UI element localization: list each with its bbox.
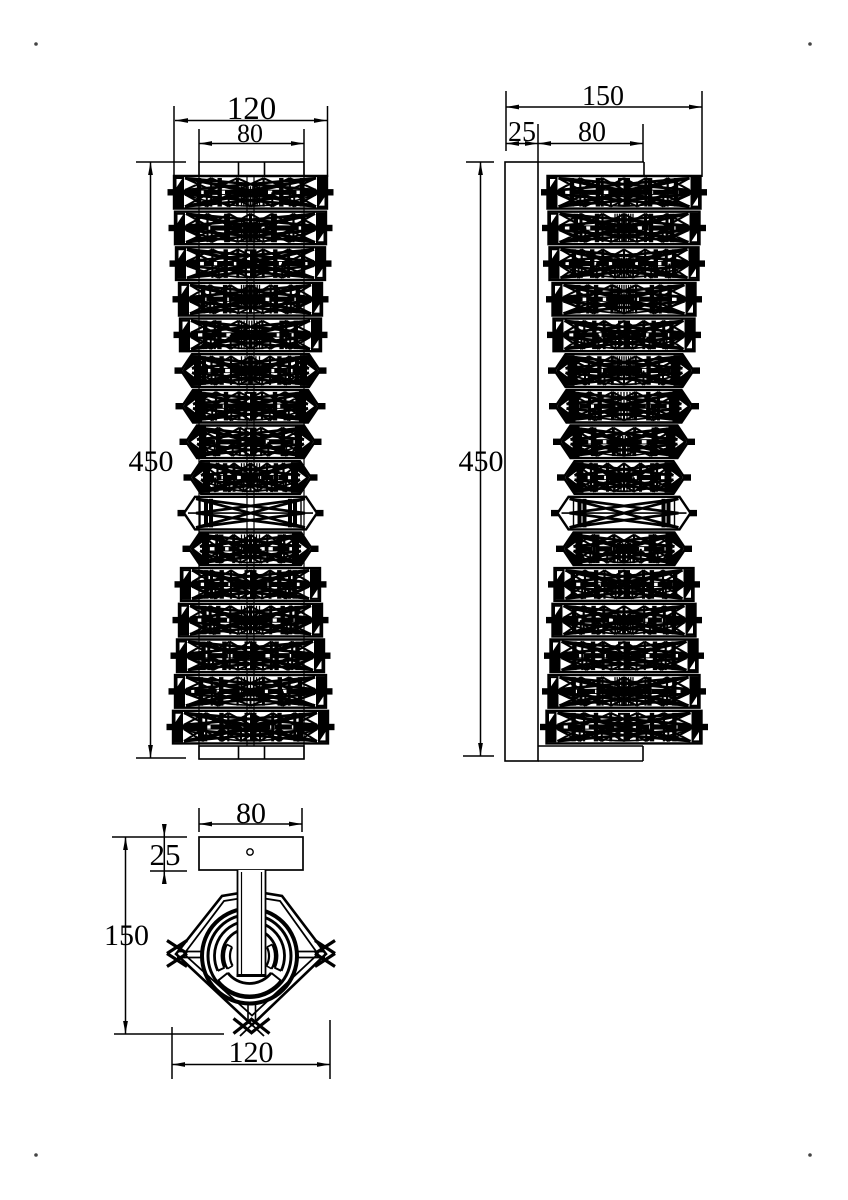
svg-text:80: 80 — [237, 119, 263, 148]
svg-text:25: 25 — [508, 117, 536, 148]
svg-text:80: 80 — [578, 117, 606, 148]
svg-text:120: 120 — [229, 1036, 274, 1069]
svg-text:150: 150 — [582, 81, 624, 112]
svg-text:80: 80 — [236, 797, 266, 830]
svg-text:25: 25 — [150, 837, 181, 872]
svg-text:150: 150 — [104, 919, 149, 952]
svg-text:450: 450 — [129, 445, 174, 478]
svg-text:450: 450 — [459, 445, 504, 478]
